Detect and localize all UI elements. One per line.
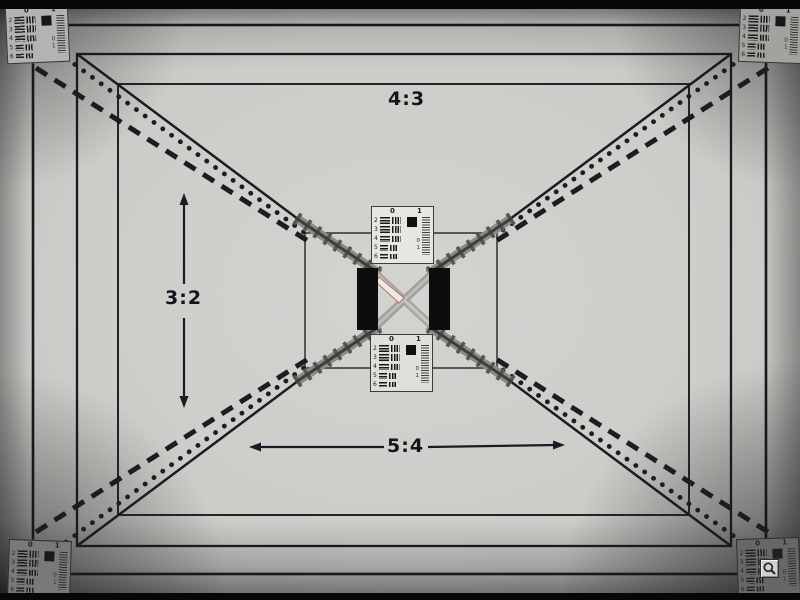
horizontal-bars: [379, 373, 387, 379]
card-row-number: 2: [8, 18, 12, 24]
card-fine-pattern-strip: [789, 17, 798, 55]
card-bar-rows: 2 3 4 5 6: [373, 216, 401, 261]
card-row-number: 5: [740, 577, 744, 583]
vertical-bars: [757, 549, 766, 556]
card-row-number: 4: [373, 364, 377, 370]
horizontal-bars: [379, 345, 389, 352]
vertical-bars: [25, 44, 33, 50]
card-fine-pattern-strip: [787, 548, 796, 586]
card-row-number: 6: [10, 54, 14, 60]
card-row-number: 2: [11, 551, 15, 557]
card-group-labels: 0 1: [371, 335, 432, 343]
card-corner-labels: 0 1: [416, 366, 420, 379]
vertical-bars: [27, 35, 36, 41]
aspect-label-3-2: 3:2: [165, 289, 202, 308]
horizontal-bars: [17, 559, 27, 566]
card-row-number: 4: [740, 568, 744, 574]
card-row-number: 4: [742, 34, 746, 40]
card-row-number: 4: [11, 569, 15, 575]
horizontal-bars: [748, 34, 758, 40]
vertical-bars: [29, 551, 38, 558]
card-row-number: 2: [739, 550, 743, 556]
horizontal-bars: [745, 549, 755, 556]
vertical-bars: [391, 354, 400, 361]
card-group-labels: 0 1: [737, 538, 798, 548]
card-group-0: 0: [28, 541, 33, 549]
card-bar-rows: 2 3 4 5 6: [740, 14, 770, 60]
aspect-label-5-4: 5:4: [387, 437, 424, 456]
card-black-square: [772, 549, 782, 559]
horizontal-bars: [746, 568, 756, 574]
card-corner-0: 0: [416, 366, 420, 373]
horizontal-bars: [747, 586, 755, 591]
vertical-bars: [26, 53, 34, 58]
resolution-target-center-lower: 0 1 2 3 4 5 6 0 1: [370, 334, 433, 392]
vertical-bars: [760, 16, 769, 23]
horizontal-bars: [379, 364, 389, 370]
card-row-number: 5: [10, 577, 14, 583]
card-black-square: [775, 16, 785, 26]
card-black-square: [406, 345, 416, 355]
horizontal-bars: [748, 15, 758, 22]
vertical-bars: [390, 245, 398, 251]
card-group-1: 1: [416, 335, 421, 343]
photo-edge-bottom: [0, 593, 800, 600]
card-row-number: 3: [740, 559, 744, 565]
card-row-number: 5: [9, 45, 13, 51]
horizontal-bars: [379, 382, 387, 387]
card-corner-1: 1: [784, 44, 788, 51]
resolution-target-bottom-left: 0 1 2 3 4 5 6 0 1: [7, 539, 72, 599]
card-corner-labels: 0 1: [784, 37, 788, 50]
horizontal-bars: [16, 578, 24, 584]
horizontal-bars: [14, 17, 24, 24]
card-row-number: 6: [741, 51, 745, 57]
vertical-bars: [392, 217, 401, 224]
card-corner-labels: 0 1: [52, 36, 56, 49]
card-row-number: 4: [374, 236, 378, 242]
horizontal-bars: [15, 44, 23, 50]
card-corner-labels: 0 1: [53, 572, 57, 585]
vertical-bars: [757, 53, 765, 58]
horizontal-bars: [380, 217, 390, 224]
card-row-number: 3: [742, 25, 746, 31]
vertical-bars: [757, 586, 765, 591]
resolution-target-top-left: 0 1 2 3 4 5 6 0 1: [5, 4, 70, 65]
horizontal-bars: [16, 587, 24, 592]
cross-highlight-blade: [376, 277, 404, 303]
magnifier-icon: [762, 561, 777, 576]
card-fine-pattern-strip: [421, 345, 429, 383]
card-fine-pattern-strip: [56, 15, 66, 53]
card-row-number: 6: [10, 586, 14, 592]
card-group-0: 0: [390, 207, 395, 215]
horizontal-bars: [380, 254, 388, 259]
vertical-bars: [391, 345, 400, 352]
card-group-labels: 0 1: [372, 207, 433, 215]
horizontal-bars: [747, 52, 755, 57]
card-bar-rows: 2 3 4 5 6: [7, 15, 37, 61]
card-corner-labels: 0 1: [783, 569, 787, 582]
horizontal-bars: [380, 236, 390, 242]
photo-edge-top: [0, 0, 800, 9]
card-corner-1: 1: [417, 245, 421, 252]
horizontal-bars: [15, 26, 25, 33]
vertical-bars: [26, 16, 35, 23]
vertical-bars: [390, 254, 398, 259]
vertical-bars: [392, 236, 401, 242]
horizontal-bars: [747, 43, 755, 49]
card-corner-1: 1: [52, 43, 56, 50]
resolution-target-center-upper: 0 1 2 3 4 5 6 0 1: [371, 206, 434, 264]
card-row-number: 3: [373, 355, 377, 361]
card-row-number: 2: [373, 346, 377, 352]
card-corner-1: 1: [783, 576, 787, 583]
card-bar-rows: 2 3 4 5 6: [372, 344, 400, 389]
card-corner-0: 0: [417, 238, 421, 245]
card-row-number: 5: [741, 42, 745, 48]
card-corner-1: 1: [416, 373, 420, 380]
card-bar-rows: 2 3 4 5 6: [9, 549, 39, 595]
card-row-number: 3: [11, 560, 15, 566]
vertical-bars: [29, 560, 38, 567]
card-row-number: 6: [741, 586, 745, 592]
card-fine-pattern-strip: [58, 552, 67, 590]
card-black-square: [44, 551, 54, 561]
horizontal-bars: [746, 558, 756, 565]
vertical-bars: [392, 226, 401, 233]
card-row-number: 6: [373, 382, 377, 388]
vertical-bars: [391, 364, 400, 370]
card-corner-labels: 0 1: [417, 238, 421, 251]
card-row-number: 3: [374, 227, 378, 233]
vertical-bars: [389, 382, 397, 387]
horizontal-bars: [746, 577, 754, 583]
card-group-1: 1: [782, 538, 787, 546]
aspect-label-4-3: 4:3: [388, 90, 425, 109]
card-black-square: [41, 15, 51, 25]
card-group-0: 0: [389, 335, 394, 343]
horizontal-bars: [16, 54, 24, 59]
vertical-bars: [760, 25, 769, 32]
card-group-1: 1: [55, 542, 60, 550]
horizontal-bars: [379, 354, 389, 361]
card-fine-pattern-strip: [422, 217, 430, 255]
vertical-bars: [760, 34, 769, 40]
vertical-bars: [389, 373, 397, 379]
card-row-number: 2: [742, 16, 746, 22]
card-row-number: 5: [373, 373, 377, 379]
vertical-bars: [757, 43, 765, 49]
card-group-1: 1: [417, 207, 422, 215]
resolution-target-top-right: 0 1 2 3 4 5 6 0 1: [738, 4, 800, 64]
horizontal-bars: [17, 550, 27, 557]
card-corner-1: 1: [53, 579, 57, 586]
vertical-bars: [26, 578, 34, 584]
vertical-bars: [27, 25, 36, 32]
horizontal-bars: [15, 35, 25, 41]
center-cross-bars: [374, 272, 434, 328]
test-chart-photo: 4:3 3:2 5:4 0 1 2 3 4 5 6 0 1 0 1 2 3 4 …: [0, 0, 800, 600]
horizontal-bars: [380, 226, 390, 233]
zoom-button[interactable]: [760, 559, 779, 578]
card-row-number: 4: [9, 36, 13, 42]
card-row-number: 6: [374, 254, 378, 260]
horizontal-bars: [17, 569, 27, 575]
card-black-square: [407, 217, 417, 227]
card-row-number: 5: [374, 245, 378, 251]
card-row-number: 3: [9, 27, 13, 33]
vertical-bars: [29, 569, 38, 575]
horizontal-bars: [748, 24, 758, 31]
horizontal-bars: [380, 245, 388, 251]
card-group-0: 0: [755, 539, 760, 547]
card-row-number: 2: [374, 218, 378, 224]
